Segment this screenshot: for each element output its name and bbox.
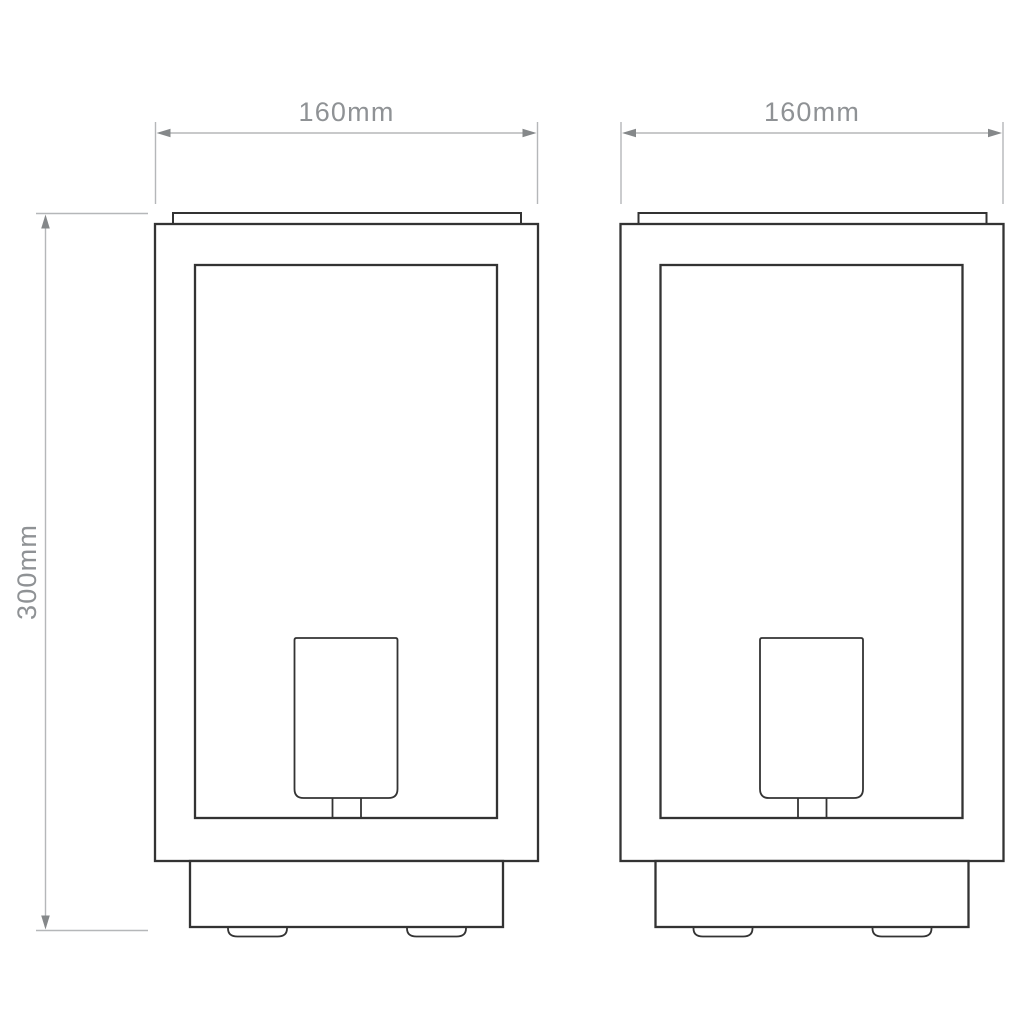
technical-drawing: 300mm 160mm 160mm bbox=[0, 0, 1024, 1024]
width-dimension-left: 160mm bbox=[156, 97, 538, 204]
width-dimension-right: 160mm bbox=[621, 97, 1003, 204]
fixture-right bbox=[621, 213, 1004, 937]
arrow-down-icon bbox=[41, 916, 50, 930]
arrow-right-icon bbox=[988, 129, 1002, 138]
height-dimension: 300mm bbox=[12, 214, 148, 931]
fixture-left bbox=[155, 213, 538, 937]
arrow-left-icon bbox=[622, 129, 636, 138]
arrow-up-icon bbox=[41, 215, 50, 229]
arrow-left-icon bbox=[157, 129, 171, 138]
height-dimension-label: 300mm bbox=[12, 524, 42, 620]
arrow-right-icon bbox=[523, 129, 537, 138]
width-dimension-label-left: 160mm bbox=[298, 97, 394, 127]
width-dimension-label-right: 160mm bbox=[764, 97, 860, 127]
